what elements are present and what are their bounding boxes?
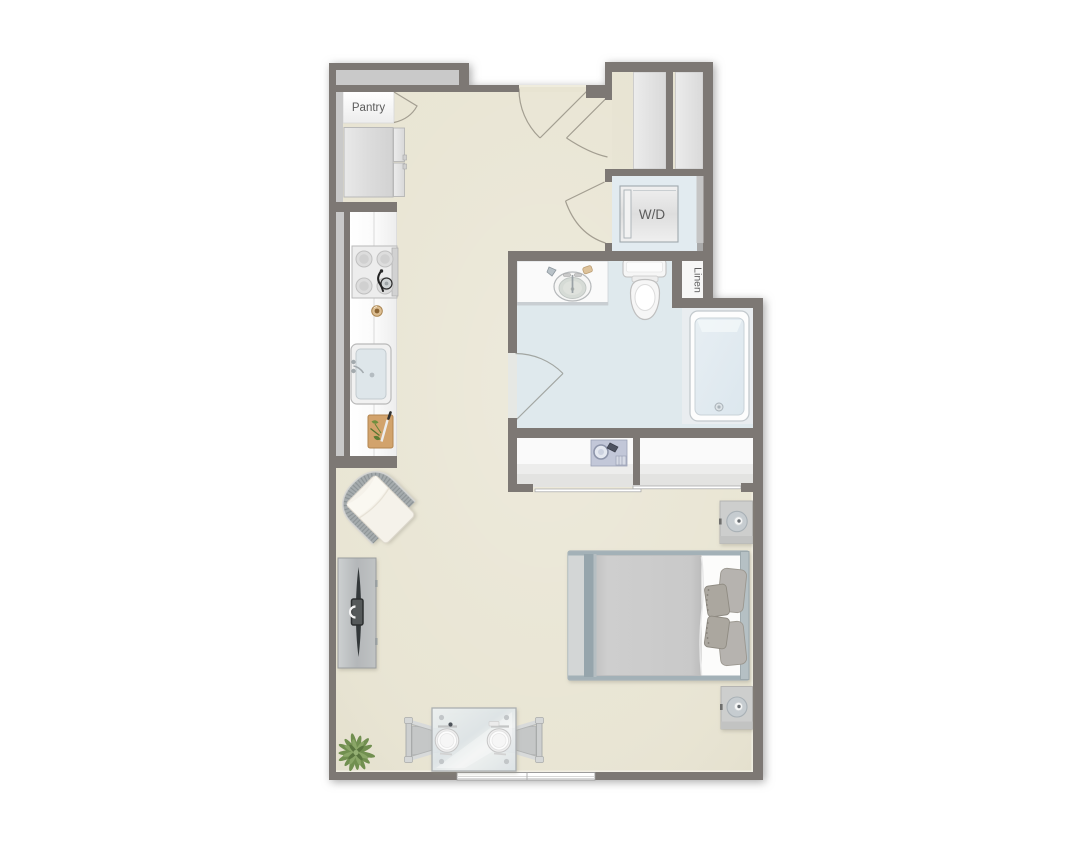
svg-text:Linen: Linen <box>692 267 704 293</box>
svg-text:W/D: W/D <box>639 207 665 222</box>
svg-text:Pantry: Pantry <box>352 102 385 114</box>
